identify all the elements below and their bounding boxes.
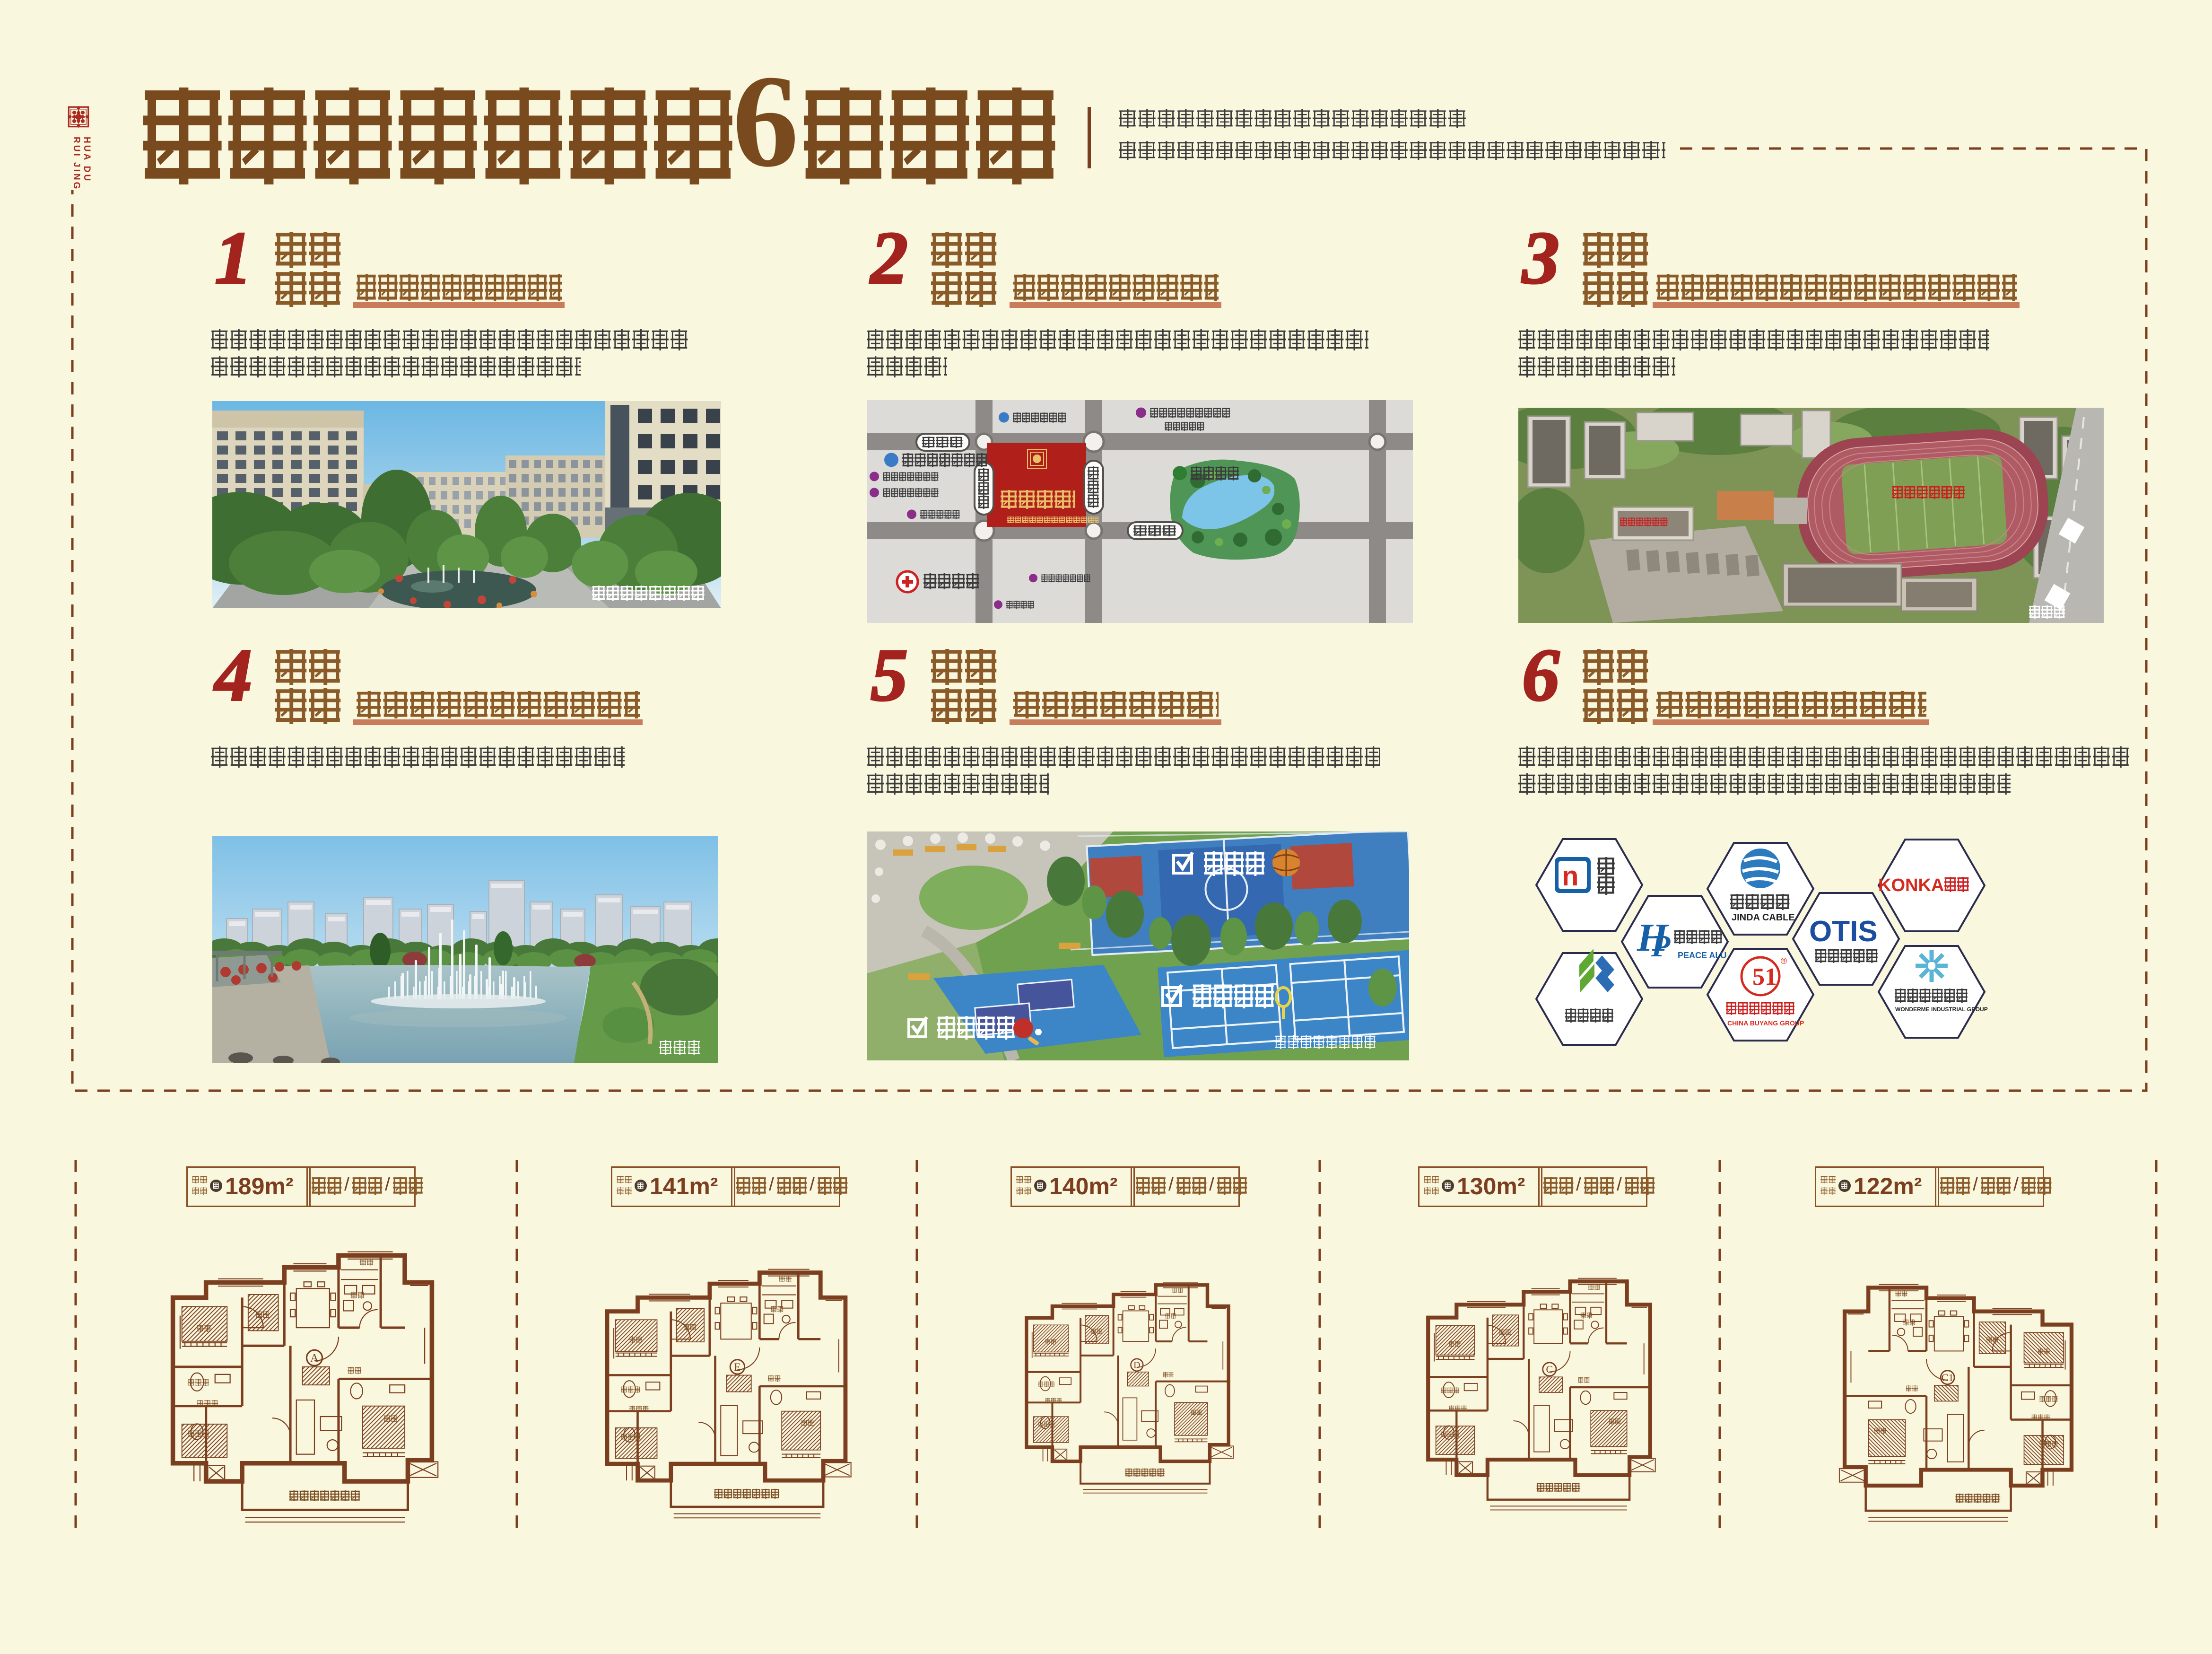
svg-text:E: E: [734, 1361, 740, 1374]
svg-text:C: C: [1546, 1364, 1553, 1375]
svg-text:C1: C1: [1942, 1372, 1954, 1383]
svg-text:OTIS: OTIS: [1809, 915, 1878, 948]
svg-text:CHINA BUYANG GROUP: CHINA BUYANG GROUP: [1727, 1019, 1804, 1027]
svg-text:KONKA: KONKA: [1878, 875, 1944, 895]
svg-text:®: ®: [1781, 956, 1787, 966]
svg-text:PEACE ALU: PEACE ALU: [1678, 951, 1726, 960]
svg-text:D: D: [1133, 1360, 1140, 1371]
svg-text:A: A: [310, 1351, 319, 1365]
svg-text:WONDERME INDUSTRIAL GROUP: WONDERME INDUSTRIAL GROUP: [1895, 1006, 1988, 1013]
svg-text:JINDA CABLE: JINDA CABLE: [1732, 912, 1795, 923]
svg-text:n: n: [1562, 861, 1578, 892]
svg-text:P: P: [1651, 929, 1671, 963]
svg-text:51: 51: [1752, 963, 1777, 990]
